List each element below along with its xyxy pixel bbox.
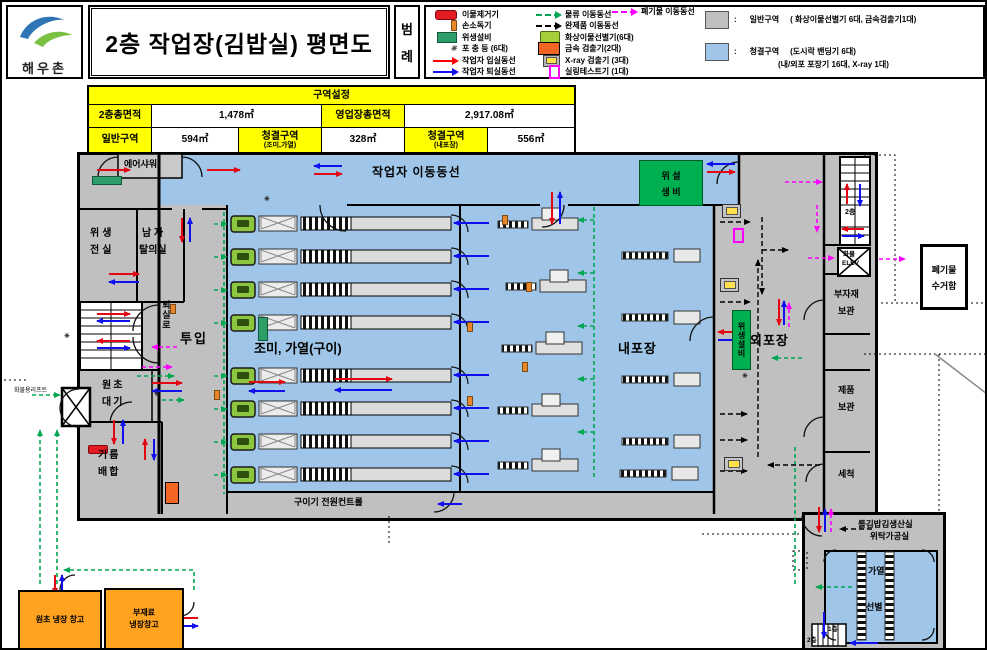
hand-sanitizer-icon	[467, 322, 473, 332]
label-floor-2b: 2층	[807, 637, 817, 644]
legend-item: 완제품 이동동선	[530, 20, 619, 31]
sanitary-equipment-box: 위 설 생 비	[639, 160, 703, 206]
sanitation-equipment-icon	[92, 176, 122, 185]
label-cargo-lift: 화물용리프트	[14, 388, 47, 395]
floorplan-page: 해우촌 2층 작업장(김밥실) 평면도 범 례 이물제거기 손소독기 위생설비 …	[0, 0, 987, 650]
left-stairwell	[80, 302, 142, 370]
table-value: 1,478㎡	[152, 105, 321, 127]
hand-sanitizer-icon	[214, 390, 220, 400]
table-value: 556㎡	[488, 128, 574, 152]
table-value: 594㎡	[152, 128, 238, 152]
label-cargo-elevator-2: ELEV	[842, 260, 859, 267]
insect-trap-icon	[427, 44, 457, 53]
room-label-mens-changing-2: 탈의실	[139, 245, 167, 256]
room-label-seasoning-heating: 조미, 가열(구이)	[254, 342, 342, 356]
general-zone-swatch	[705, 11, 729, 29]
xray-monitor-icon	[722, 204, 741, 218]
room-label-sanitary-anteroom-1: 위생	[90, 228, 114, 239]
legend-item: 손소독기	[427, 20, 491, 31]
room-label-worker-route: 작업자 이동동선	[372, 166, 461, 179]
sanitation-equipment-icon	[427, 32, 457, 43]
room-label-submaterial-storage-1: 부자재	[834, 290, 859, 300]
label-annex-title-1: 롤김밥김생산실	[858, 520, 913, 529]
table-label: 일반구역	[89, 128, 151, 152]
metal-detector-icon	[530, 42, 560, 55]
insect-trap-icon	[64, 332, 70, 340]
legend-item: 작업자 퇴실동선	[427, 66, 516, 77]
xray-monitor-icon	[724, 457, 743, 471]
sanitary-equipment-bar: 위생설비	[732, 310, 751, 370]
table-label: 2층총면적	[89, 105, 151, 127]
room-label-raw-waiting-2: 대기	[102, 397, 124, 408]
room-label-raw-waiting-1: 원초	[102, 380, 124, 391]
insect-trap-icon	[742, 372, 748, 380]
room-label-sanitary-anteroom-2: 전실	[90, 245, 114, 256]
waste-arrow-icon	[606, 11, 636, 13]
room-label-oil-mixing-2: 배합	[98, 467, 120, 478]
room-label-exit-corridor: 퇴실로	[160, 300, 170, 330]
insect-trap-icon	[154, 390, 160, 398]
raw-cold-storage: 원초 냉장 창고	[18, 590, 102, 650]
room-label-input: 투입	[180, 332, 208, 346]
table-label: 청결구역(내포장)	[405, 128, 487, 152]
legend-zone-clean-desc2: (내/외포 포장기 16대, X-ray 1대)	[778, 59, 889, 70]
room-label-air-shower: 에어샤워	[124, 160, 157, 170]
top-right-stairs	[840, 157, 870, 245]
hand-sanitizer-icon	[502, 215, 508, 225]
hand-sanitizer-icon	[170, 304, 176, 314]
table-label: 영업장총면적	[322, 105, 404, 127]
worker-entry-arrow-icon	[427, 60, 457, 62]
room-label-annex-sorting: 선별	[866, 603, 883, 613]
room-label-product-storage-2: 보관	[838, 403, 855, 413]
seal-tester-icon	[530, 65, 560, 79]
label-annex-title-2: 위탁가공실	[870, 532, 909, 541]
legend-item: 이물제거기	[427, 9, 499, 20]
xray-monitor-icon	[720, 278, 739, 292]
legend-item: 실링테스트기 (1대)	[530, 66, 629, 77]
area-table-title: 구역설정	[89, 87, 574, 104]
logistics-arrow-icon	[530, 14, 560, 16]
hand-sanitizer-icon	[522, 362, 528, 372]
room-label-inner-packing: 내포장	[618, 342, 657, 356]
worker-exit-arrow-icon	[427, 71, 457, 73]
label-cargo-elevator-1: 화물	[843, 251, 855, 258]
legend-zone-general: : 일반구역 ( 화상이물선별기 6대, 금속검출기1대)	[705, 14, 916, 25]
metal-detector-icon	[165, 482, 179, 504]
room-label-product-storage-1: 제품	[838, 386, 855, 396]
room-label-washing: 세척	[838, 470, 855, 480]
table-label: 청결구역(조미,가열)	[239, 128, 321, 152]
sanitation-equipment-icon	[258, 317, 268, 341]
legend-item: 작업자 입실동선	[427, 55, 516, 66]
legend-item: 포 충 등 (6대)	[427, 43, 508, 54]
room-label-mens-changing-1: 남 자	[142, 228, 163, 239]
finished-goods-arrow-icon	[530, 25, 560, 27]
area-table: 구역설정 2층총면적 1,478㎡ 영업장총면적 2,917.08㎡ 일반구역 …	[87, 85, 576, 154]
hand-sanitizer-icon	[467, 396, 473, 406]
legend-zone-clean: : 청결구역 (도시락 밴딩기 6대)	[705, 46, 856, 57]
foreign-matter-remover-icon	[427, 10, 457, 20]
label-floor-2: 2층	[845, 209, 855, 217]
submaterial-cold-storage: 부재료 냉장창고	[104, 588, 184, 650]
label-roaster-control: 구이기 전원컨트롤	[294, 498, 363, 508]
room-label-annex-heating: 가열	[868, 567, 885, 577]
room-label-submaterial-storage-2: 보관	[838, 307, 855, 317]
waste-collection-box: 폐기물 수거함	[920, 244, 968, 310]
seal-tester-icon	[733, 228, 744, 243]
insect-trap-icon	[264, 195, 270, 203]
table-value: 2,917.08㎡	[405, 105, 574, 127]
legend-item: 물류 이동동선	[530, 9, 611, 20]
clean-zone-swatch	[705, 43, 729, 61]
inner-packing-machines	[498, 208, 700, 480]
room-label-outer-packing: 외포장	[750, 334, 789, 348]
label-floor-1: 1층	[828, 626, 838, 633]
hand-sanitizer-icon	[427, 20, 457, 31]
legend-item: 금속 검출기(2대)	[530, 43, 621, 54]
table-value: 328㎡	[322, 128, 404, 152]
legend-item: 위생설비	[427, 32, 491, 43]
room-label-oil-mixing-1: 기름	[98, 450, 120, 461]
hand-sanitizer-icon	[526, 282, 532, 292]
legend-item: 폐기물 이동동선	[606, 6, 695, 17]
door-arcs	[60, 157, 934, 640]
